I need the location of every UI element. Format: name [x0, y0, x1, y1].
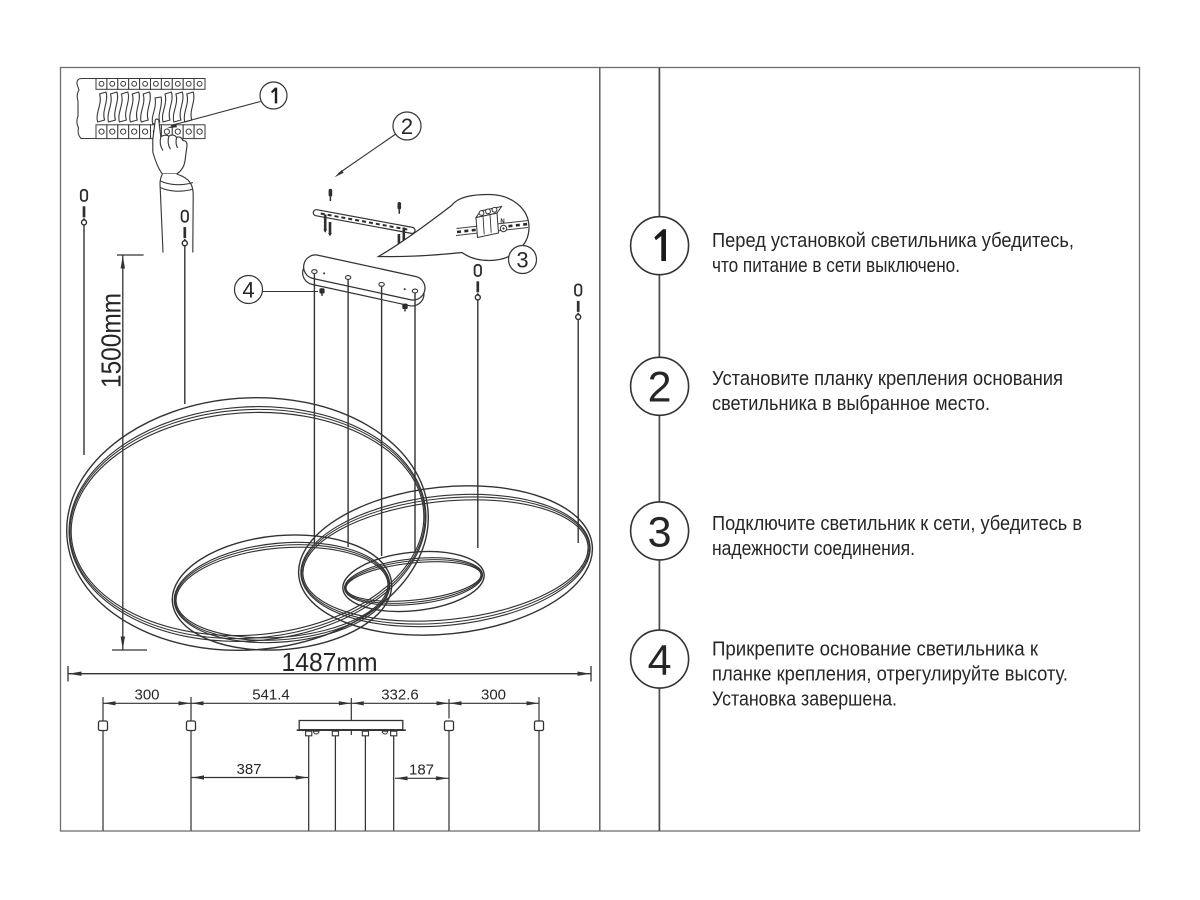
svg-text:3: 3	[648, 508, 672, 556]
svg-text:1500mm: 1500mm	[96, 293, 127, 388]
svg-text:3: 3	[516, 247, 528, 272]
svg-text:Прикрепите основание светильни: Прикрепите основание светильника к	[712, 638, 1039, 661]
svg-text:300: 300	[134, 687, 159, 704]
svg-text:надежности соединения.: надежности соединения.	[712, 537, 915, 560]
svg-text:387: 387	[236, 761, 261, 778]
svg-text:Установка завершена.: Установка завершена.	[712, 688, 897, 711]
svg-text:что питание в сети выключено.: что питание в сети выключено.	[712, 254, 960, 277]
svg-text:Подключите светильник к сети,: Подключите светильник к сети, убедитесь …	[712, 512, 1082, 535]
svg-text:планке крепления, отрегулируйт: планке крепления, отрегулируйте высоту.	[712, 663, 1068, 686]
svg-text:2: 2	[648, 364, 672, 412]
svg-text:Установите планку крепления ос: Установите планку крепления основания	[712, 367, 1063, 390]
svg-text:4: 4	[242, 277, 254, 302]
svg-text:332.6: 332.6	[381, 687, 419, 704]
svg-text:2: 2	[401, 114, 413, 139]
svg-text:1487mm: 1487mm	[282, 647, 378, 677]
svg-text:N: N	[500, 219, 504, 225]
svg-text:4: 4	[648, 637, 672, 685]
svg-text:187: 187	[409, 762, 434, 779]
svg-text:541.4: 541.4	[252, 687, 290, 704]
svg-text:Перед установкой светильника у: Перед установкой светильника убедитесь,	[712, 229, 1074, 252]
svg-text:300: 300	[481, 687, 506, 704]
svg-text:светильника в выбранное место.: светильника в выбранное место.	[712, 392, 990, 415]
